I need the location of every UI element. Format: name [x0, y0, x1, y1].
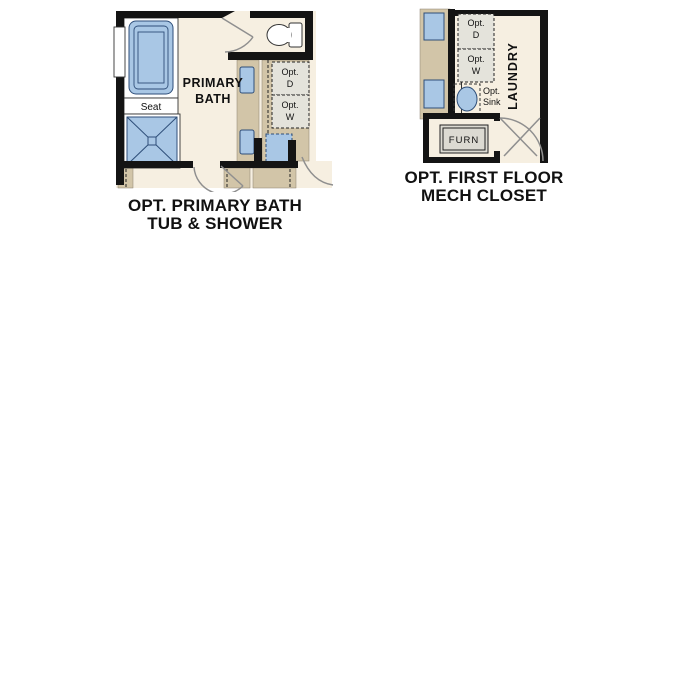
wall — [228, 52, 313, 60]
opt-washer-label: Opt. — [467, 54, 484, 64]
laundry-label: LAUNDRY — [506, 42, 520, 110]
opt-dryer-label: Opt. — [281, 67, 298, 77]
wall — [494, 113, 500, 121]
wall — [288, 140, 296, 168]
primary-bath-plan: Seat Opt. D Opt. W — [112, 6, 336, 192]
opt-sink-label: Sink — [483, 97, 501, 107]
primary-bath-title-line2: TUB & SHOWER — [100, 215, 330, 233]
furnace-label: FURN — [449, 135, 479, 146]
opt-sink — [457, 87, 477, 111]
wall — [250, 11, 313, 18]
wall — [116, 161, 193, 168]
floorplan-sheet: Seat Opt. D Opt. W — [0, 0, 687, 687]
wall — [540, 10, 548, 163]
opt-washer-label: Opt. — [281, 100, 298, 110]
wall — [494, 151, 500, 163]
mech-closet-title-line1: OPT. FIRST FLOOR — [389, 169, 579, 187]
window — [114, 27, 125, 77]
wall — [423, 113, 500, 119]
seat-label: Seat — [141, 102, 162, 113]
primary-bath-title-line1: OPT. PRIMARY BATH — [100, 197, 330, 215]
room-label: PRIMARY — [183, 76, 244, 90]
wall-door-panel — [424, 13, 444, 40]
opt-washer-label: W — [286, 112, 295, 122]
mech-closet-title-line2: MECH CLOSET — [389, 187, 579, 205]
wall — [423, 113, 429, 163]
opt-dryer-label: D — [287, 79, 294, 89]
mech-closet-title: OPT. FIRST FLOOR MECH CLOSET — [389, 169, 579, 204]
wall-door-panel — [240, 130, 254, 154]
opt-dryer-label: Opt. — [467, 18, 484, 28]
wall — [116, 11, 235, 18]
wall — [448, 9, 455, 119]
mech-closet-plan: Opt. D Opt. W Opt. Sink LAUNDRY FURN — [418, 6, 554, 166]
primary-bath-title: OPT. PRIMARY BATH TUB & SHOWER — [100, 197, 330, 232]
opt-sink-label: Opt. — [483, 86, 500, 96]
shower-drain — [148, 137, 156, 145]
wall — [423, 157, 500, 163]
room-label: BATH — [195, 92, 231, 106]
opt-dryer-label: D — [473, 30, 480, 40]
opt-washer-label: W — [472, 66, 481, 76]
wall — [254, 138, 262, 163]
toilet-seat-joint — [285, 28, 291, 42]
wall-door-panel — [424, 80, 444, 108]
wall-stub — [224, 168, 250, 188]
